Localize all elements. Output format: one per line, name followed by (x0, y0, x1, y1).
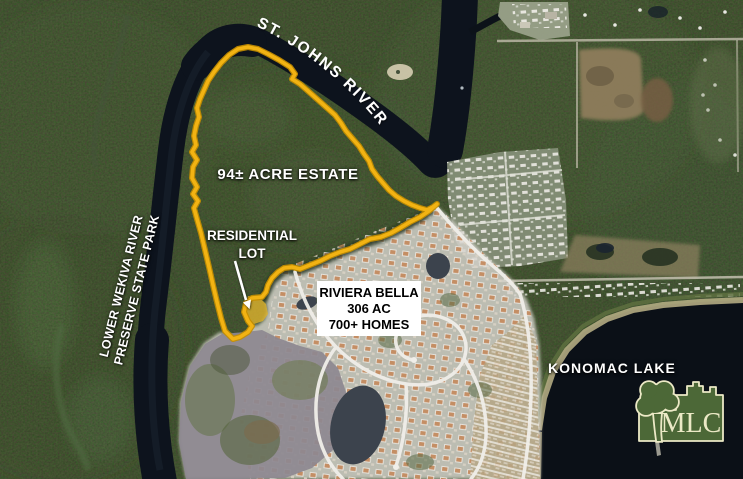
residential-lot-label-line1: RESIDENTIAL (207, 227, 297, 245)
riviera-bella-callout: RIVIERA BELLA 306 AC 700+ HOMES (317, 281, 421, 336)
riviera-bella-acreage: 306 AC (317, 301, 421, 317)
residential-lot-label: RESIDENTIAL LOT (207, 227, 297, 262)
konomac-lake-label: KONOMAC LAKE (548, 360, 676, 376)
mlc-logo-text: MLC (661, 408, 722, 439)
residential-lot-label-line2: LOT (207, 245, 297, 263)
acre-estate-label: 94± ACRE ESTATE (217, 166, 358, 183)
aerial-map: ST. JOHNS RIVER MLC (0, 0, 743, 479)
map-canvas: ST. JOHNS RIVER MLC 94± ACRE ESTATE RESI… (0, 0, 743, 479)
riviera-bella-homes: 700+ HOMES (317, 317, 421, 333)
riviera-bella-name: RIVIERA BELLA (317, 285, 421, 301)
